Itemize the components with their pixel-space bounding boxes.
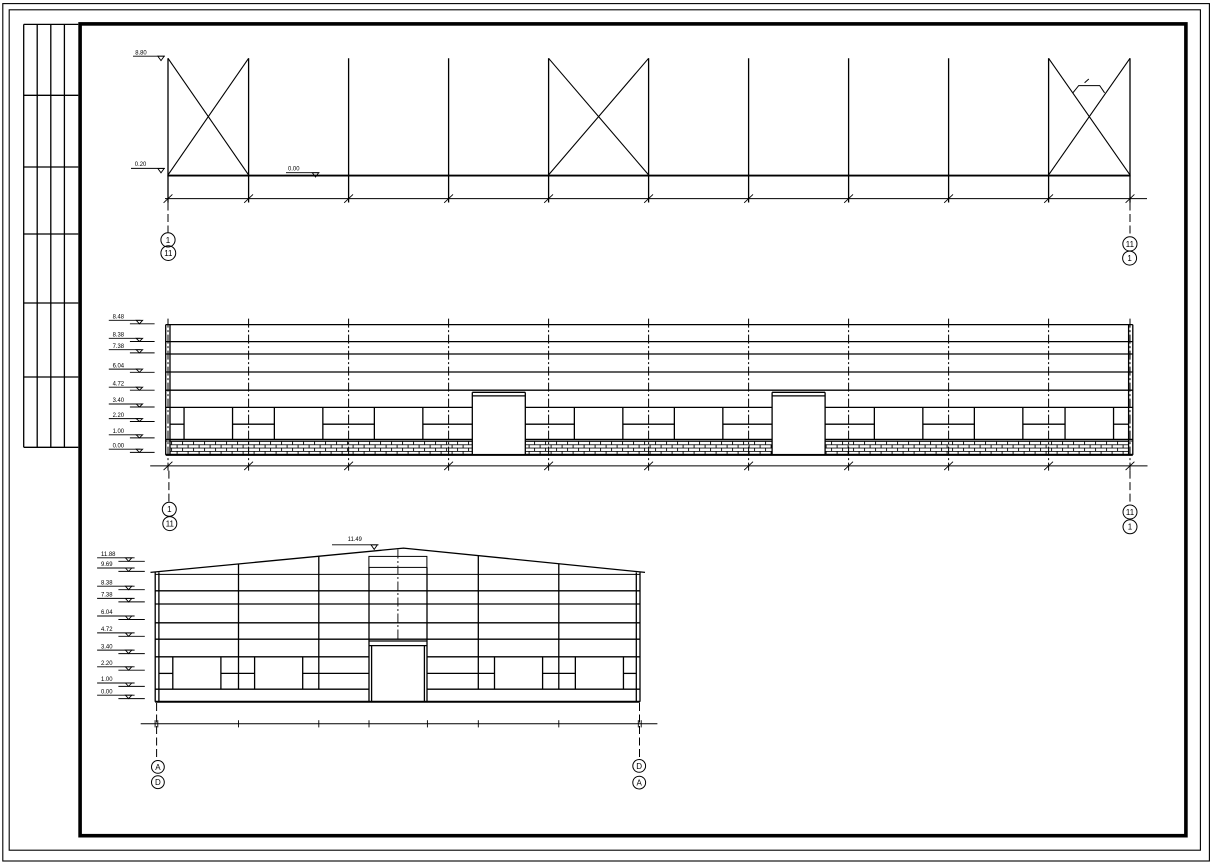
svg-text:6.04: 6.04 — [113, 363, 125, 369]
svg-text:8.38: 8.38 — [113, 333, 125, 339]
svg-text:11: 11 — [164, 249, 173, 258]
svg-text:8.48: 8.48 — [113, 315, 125, 321]
svg-text:11.88: 11.88 — [101, 552, 116, 558]
svg-text:7.38: 7.38 — [101, 593, 113, 599]
svg-text:6.04: 6.04 — [101, 610, 113, 616]
svg-text:D: D — [636, 762, 642, 771]
svg-text:3.40: 3.40 — [113, 398, 125, 404]
svg-text:0.20: 0.20 — [135, 162, 147, 168]
svg-text:11: 11 — [166, 519, 175, 528]
svg-text:1.00: 1.00 — [113, 429, 125, 435]
svg-text:1.00: 1.00 — [101, 677, 113, 683]
svg-text:8.80: 8.80 — [135, 50, 147, 56]
svg-text:4.72: 4.72 — [101, 627, 113, 633]
svg-text:1: 1 — [166, 236, 171, 245]
svg-text:9.69: 9.69 — [101, 562, 113, 568]
svg-text:1: 1 — [1128, 523, 1133, 532]
svg-text:2.20: 2.20 — [101, 661, 113, 667]
svg-text:11.49: 11.49 — [348, 537, 363, 543]
svg-text:0.00: 0.00 — [101, 689, 113, 695]
svg-text:A: A — [637, 778, 643, 787]
svg-text:11: 11 — [1126, 240, 1135, 249]
svg-text:1: 1 — [167, 505, 172, 514]
svg-text:2.20: 2.20 — [113, 413, 125, 419]
svg-text:D: D — [155, 778, 161, 787]
svg-text:4.72: 4.72 — [113, 381, 125, 387]
svg-text:0.00: 0.00 — [113, 443, 125, 449]
svg-text:7.38: 7.38 — [113, 344, 125, 350]
svg-text:0.00: 0.00 — [288, 167, 300, 173]
svg-text:1: 1 — [1127, 254, 1132, 263]
svg-text:3.40: 3.40 — [101, 644, 113, 650]
svg-text:A: A — [155, 763, 161, 772]
svg-text:11: 11 — [1126, 508, 1135, 517]
svg-text:8.38: 8.38 — [101, 580, 113, 586]
